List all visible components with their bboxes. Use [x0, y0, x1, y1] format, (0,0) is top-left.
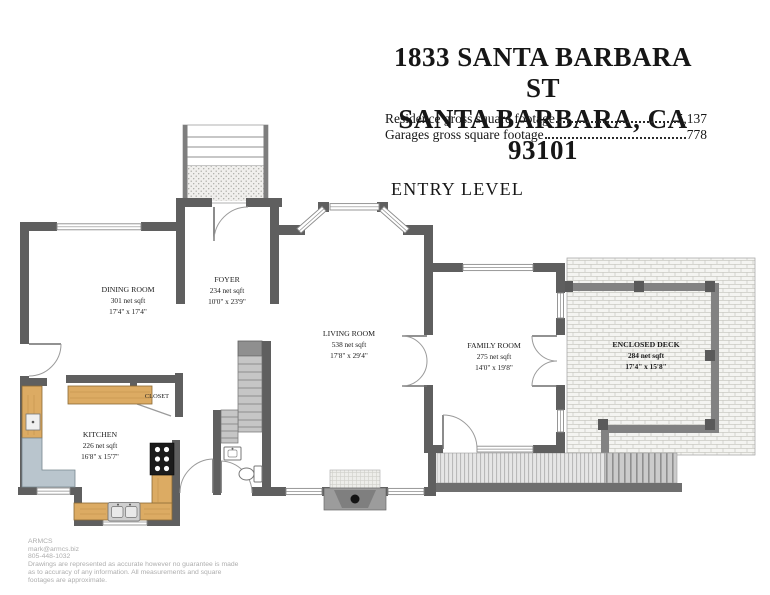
svg-text:DINING ROOM: DINING ROOM: [101, 285, 154, 294]
footage-row-garages: Garages gross square footage 778: [385, 127, 707, 143]
email: mark@armcs.biz: [28, 546, 238, 554]
svg-text:275 net sqft: 275 net sqft: [477, 352, 511, 361]
square-footage-block: Residence gross square footage 5,137 Gar…: [385, 111, 707, 142]
svg-text:284 net sqft: 284 net sqft: [628, 351, 665, 360]
company-name: ARMCS: [28, 538, 238, 546]
family-room-label: FAMILY ROOM 275 net sqft 14'0" x 19'8": [467, 341, 521, 372]
preparer-footer: ARMCS mark@armcs.biz 805-448-1032 Drawin…: [28, 538, 238, 584]
svg-text:KITCHEN: KITCHEN: [83, 430, 118, 439]
kitchen-hall-door: [180, 459, 213, 493]
fireplace-icon: [324, 470, 386, 510]
svg-text:ENCLOSED DECK: ENCLOSED DECK: [612, 340, 679, 349]
svg-text:FAMILY ROOM: FAMILY ROOM: [467, 341, 521, 350]
footage-value: 778: [687, 127, 707, 143]
phone: 805-448-1032: [28, 553, 238, 561]
living-family-french-doors: [402, 336, 427, 386]
svg-text:10'0" x 23'9": 10'0" x 23'9": [208, 297, 246, 306]
address-line1: 1833 SANTA BARBARA ST: [375, 42, 711, 104]
rear-deck-strip: [435, 453, 682, 492]
disclaimer-line: Drawings are represented as accurate how…: [28, 561, 238, 569]
wall-appliance-icon: [26, 414, 40, 430]
dining-room-label: DINING ROOM 301 net sqft 17'4" x 17'4": [101, 285, 154, 316]
footage-label: Residence gross square footage: [385, 111, 555, 127]
stove-icon: [150, 443, 174, 475]
family-deck-french-doors: [532, 336, 557, 386]
front-door: [214, 207, 248, 241]
disclaimer-line: as to accuracy of any information. All m…: [28, 569, 238, 577]
dot-leader: [556, 121, 676, 123]
powder-room: [224, 447, 262, 482]
kitchen-sink-icon: [108, 503, 140, 522]
disclaimer-line: footages are approximate.: [28, 577, 238, 585]
front-porch-steps: [183, 125, 268, 203]
svg-text:LIVING ROOM: LIVING ROOM: [323, 329, 375, 338]
closet-label: CLOSET: [145, 393, 169, 400]
svg-text:CLOSET: CLOSET: [145, 393, 169, 400]
staircase: [221, 341, 262, 443]
closet-door: [137, 404, 171, 416]
counter-gray: [22, 438, 75, 487]
svg-text:226 net sqft: 226 net sqft: [83, 441, 117, 450]
foyer-label: FOYER 234 net sqft 10'0" x 23'9": [208, 275, 246, 306]
svg-text:17'8" x 29'4": 17'8" x 29'4": [330, 351, 368, 360]
svg-text:14'0" x 19'8": 14'0" x 19'8": [475, 363, 513, 372]
dining-side-door: [29, 344, 61, 376]
svg-text:301 net sqft: 301 net sqft: [111, 296, 145, 305]
footage-label: Garages gross square footage: [385, 127, 544, 143]
svg-text:17'4" x 17'4": 17'4" x 17'4": [109, 307, 147, 316]
toilet-icon: [239, 466, 262, 482]
footage-value: 5,137: [677, 111, 707, 127]
svg-text:234 net sqft: 234 net sqft: [210, 286, 244, 295]
dot-leader: [545, 137, 686, 139]
family-rear-door: [443, 415, 477, 449]
svg-text:17'4" x 15'8": 17'4" x 15'8": [625, 362, 666, 371]
living-room-label: LIVING ROOM 538 net sqft 17'8" x 29'4": [323, 329, 375, 360]
bathroom-sink-icon: [224, 447, 241, 460]
svg-text:16'8" x 15'7": 16'8" x 15'7": [81, 452, 119, 461]
floorplan-page: DINING ROOM 301 net sqft 17'4" x 17'4" F…: [0, 0, 770, 595]
kitchen-label: KITCHEN 226 net sqft 16'8" x 15'7": [81, 430, 119, 461]
page-title: 1833 SANTA BARBARA ST SANTA BARBARA, CA …: [375, 42, 711, 166]
svg-text:538 net sqft: 538 net sqft: [332, 340, 366, 349]
svg-text:FOYER: FOYER: [214, 275, 240, 284]
footage-row-residence: Residence gross square footage 5,137: [385, 111, 707, 127]
level-title: ENTRY LEVEL: [391, 179, 524, 200]
